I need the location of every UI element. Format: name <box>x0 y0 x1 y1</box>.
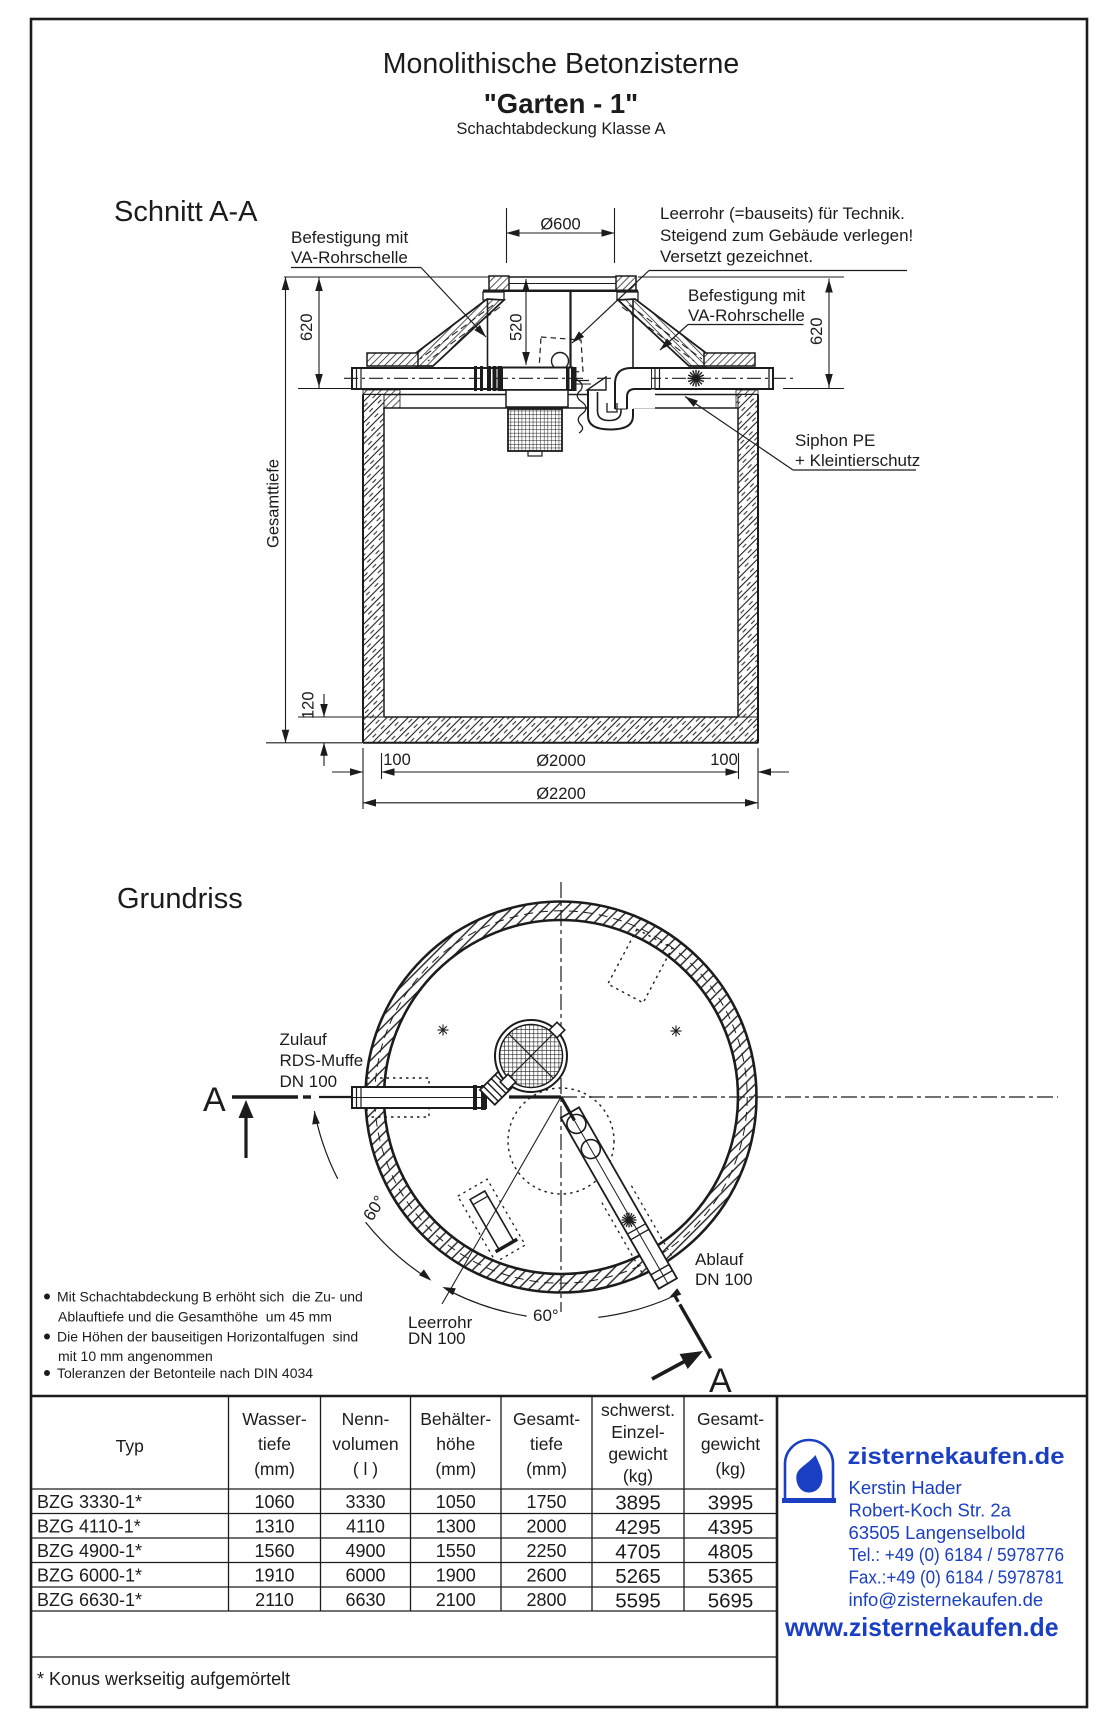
svg-text:Ablauftiefe und die Gesamthöhe: Ablauftiefe und die Gesamthöhe um 45 mm <box>58 1309 332 1325</box>
svg-text:Monolithische Betonzisterne: Monolithische Betonzisterne <box>383 48 739 80</box>
svg-text:Gesamt-: Gesamt- <box>513 1409 580 1429</box>
svg-text:1750: 1750 <box>526 1492 566 1512</box>
svg-text:Ø2000: Ø2000 <box>536 752 586 770</box>
svg-text:* Konus werkseitig aufgemörtel: * Konus werkseitig aufgemörtelt <box>37 1669 290 1689</box>
svg-text:5695: 5695 <box>708 1590 754 1613</box>
svg-text:3330: 3330 <box>345 1492 385 1512</box>
svg-text:Behälter-: Behälter- <box>420 1409 491 1429</box>
svg-text:VA-Rohrschelle: VA-Rohrschelle <box>688 306 805 325</box>
svg-text:BZG 6000-1*: BZG 6000-1* <box>37 1566 142 1586</box>
svg-text:620: 620 <box>298 313 316 341</box>
svg-text:2100: 2100 <box>436 1590 476 1610</box>
svg-text:Ø600: Ø600 <box>540 216 580 234</box>
svg-text:2250: 2250 <box>526 1541 566 1561</box>
svg-text:A: A <box>203 1081 226 1119</box>
svg-text:2000: 2000 <box>526 1517 566 1537</box>
svg-text:+ Kleintierschutz: + Kleintierschutz <box>795 451 920 470</box>
svg-text:100: 100 <box>383 751 411 769</box>
svg-text:A: A <box>709 1362 732 1400</box>
svg-text:Typ: Typ <box>116 1436 144 1456</box>
svg-text:(mm): (mm) <box>435 1459 476 1479</box>
svg-text:Leerrohr (=bauseits) für Techn: Leerrohr (=bauseits) für Technik. <box>660 204 905 223</box>
svg-text:63505 Langenselbold: 63505 Langenselbold <box>849 1522 1026 1543</box>
svg-text:4705: 4705 <box>615 1541 661 1564</box>
svg-text:4295: 4295 <box>615 1516 661 1539</box>
svg-text:520: 520 <box>508 313 526 341</box>
svg-text:Toleranzen der Betonteile nach: Toleranzen der Betonteile nach DIN 4034 <box>57 1365 313 1381</box>
svg-text:gewicht: gewicht <box>701 1434 760 1454</box>
svg-text:1050: 1050 <box>436 1492 476 1512</box>
svg-text:volumen: volumen <box>332 1434 398 1454</box>
svg-text:2110: 2110 <box>255 1590 294 1610</box>
svg-text:4900: 4900 <box>345 1541 385 1561</box>
svg-text:5595: 5595 <box>615 1590 661 1613</box>
svg-text:Versetzt gezeichnet.: Versetzt gezeichnet. <box>660 247 813 266</box>
svg-text:1900: 1900 <box>436 1566 476 1586</box>
svg-text:Fax.:+49 (0) 6184 / 5978781: Fax.:+49 (0) 6184 / 5978781 <box>849 1567 1065 1588</box>
svg-text:(mm): (mm) <box>254 1459 295 1479</box>
svg-text:Kerstin Hader: Kerstin Hader <box>849 1477 962 1498</box>
svg-text:Robert-Koch Str. 2a: Robert-Koch Str. 2a <box>849 1499 1012 1520</box>
svg-text:Nenn-: Nenn- <box>342 1409 390 1429</box>
svg-text:1560: 1560 <box>254 1541 294 1561</box>
svg-text:BZG 4900-1*: BZG 4900-1* <box>37 1541 142 1561</box>
svg-text:(kg): (kg) <box>623 1466 653 1486</box>
svg-text:6000: 6000 <box>345 1566 385 1586</box>
svg-text:6630: 6630 <box>345 1590 385 1610</box>
svg-text:tiefe: tiefe <box>530 1434 563 1454</box>
svg-text:BZG 6630-1*: BZG 6630-1* <box>37 1590 142 1610</box>
svg-text:VA-Rohrschelle: VA-Rohrschelle <box>291 248 408 267</box>
svg-text:620: 620 <box>808 317 826 345</box>
svg-text:4110: 4110 <box>346 1517 385 1537</box>
svg-text:1550: 1550 <box>436 1541 476 1561</box>
svg-text:1310: 1310 <box>254 1517 294 1537</box>
svg-text:Schnitt A-A: Schnitt A-A <box>114 196 258 228</box>
svg-text:Einzel-: Einzel- <box>611 1422 665 1442</box>
svg-text:Gesamt-: Gesamt- <box>697 1409 764 1429</box>
svg-text:Steigend zum Gebäude verlegen!: Steigend zum Gebäude verlegen! <box>660 226 913 245</box>
svg-text:BZG 4110-1*: BZG 4110-1* <box>37 1517 141 1537</box>
svg-text:(kg): (kg) <box>715 1459 745 1479</box>
svg-text:schwerst.: schwerst. <box>601 1400 675 1420</box>
svg-text:5365: 5365 <box>708 1565 754 1588</box>
svg-text:RDS-Muffe: RDS-Muffe <box>280 1051 364 1070</box>
svg-text:Siphon PE: Siphon PE <box>795 431 875 450</box>
svg-text:"Garten - 1": "Garten - 1" <box>484 88 638 119</box>
svg-text:2600: 2600 <box>526 1566 566 1586</box>
svg-text:info@zisternekaufen.de: info@zisternekaufen.de <box>849 1589 1044 1610</box>
svg-text:DN 100: DN 100 <box>280 1072 338 1091</box>
svg-text:tiefe: tiefe <box>258 1434 291 1454</box>
svg-text:mit 10 mm angenommen: mit 10 mm angenommen <box>58 1348 213 1364</box>
svg-text:DN 100: DN 100 <box>408 1329 466 1348</box>
svg-text:höhe: höhe <box>436 1434 475 1454</box>
svg-text:Grundriss: Grundriss <box>117 883 243 915</box>
svg-text:Gesamttiefe: Gesamttiefe <box>265 459 283 548</box>
svg-text:DN 100: DN 100 <box>695 1270 753 1289</box>
svg-text:BZG 3330-1*: BZG 3330-1* <box>37 1492 142 1512</box>
svg-text:1910: 1910 <box>254 1566 294 1586</box>
svg-text:Tel.: +49 (0) 6184 / 5978776: Tel.: +49 (0) 6184 / 5978776 <box>849 1544 1065 1565</box>
svg-text:www.zisternekaufen.de: www.zisternekaufen.de <box>784 1612 1058 1642</box>
svg-text:Befestigung mit: Befestigung mit <box>688 286 805 305</box>
svg-text:120: 120 <box>300 691 318 719</box>
svg-text:2800: 2800 <box>526 1590 566 1610</box>
svg-text:gewicht: gewicht <box>608 1444 667 1464</box>
svg-text:4395: 4395 <box>708 1516 754 1539</box>
svg-text:5265: 5265 <box>615 1565 661 1588</box>
svg-text:Mit Schachtabdeckung B erhöht: Mit Schachtabdeckung B erhöht sich die Z… <box>57 1289 363 1305</box>
svg-text:(mm): (mm) <box>526 1459 567 1479</box>
svg-text:Die Höhen der bauseitigen Hori: Die Höhen der bauseitigen Horizontalfuge… <box>57 1329 358 1345</box>
svg-text:zisternekaufen.de: zisternekaufen.de <box>848 1443 1065 1469</box>
svg-text:60°: 60° <box>533 1306 559 1325</box>
svg-text:Befestigung mit: Befestigung mit <box>291 228 408 247</box>
svg-text:3995: 3995 <box>708 1492 754 1515</box>
svg-text:Zulauf: Zulauf <box>280 1030 328 1049</box>
svg-text:Ø2200: Ø2200 <box>536 785 586 803</box>
svg-text:100: 100 <box>710 751 738 769</box>
svg-text:Schachtabdeckung Klasse A: Schachtabdeckung Klasse A <box>456 120 665 138</box>
svg-text:1060: 1060 <box>254 1492 294 1512</box>
svg-text:3895: 3895 <box>615 1492 661 1515</box>
svg-text:Ablauf: Ablauf <box>695 1250 743 1269</box>
svg-text:( l ): ( l ) <box>353 1459 378 1479</box>
svg-text:4805: 4805 <box>708 1541 754 1564</box>
svg-text:Wasser-: Wasser- <box>242 1409 307 1429</box>
svg-text:1300: 1300 <box>436 1517 476 1537</box>
